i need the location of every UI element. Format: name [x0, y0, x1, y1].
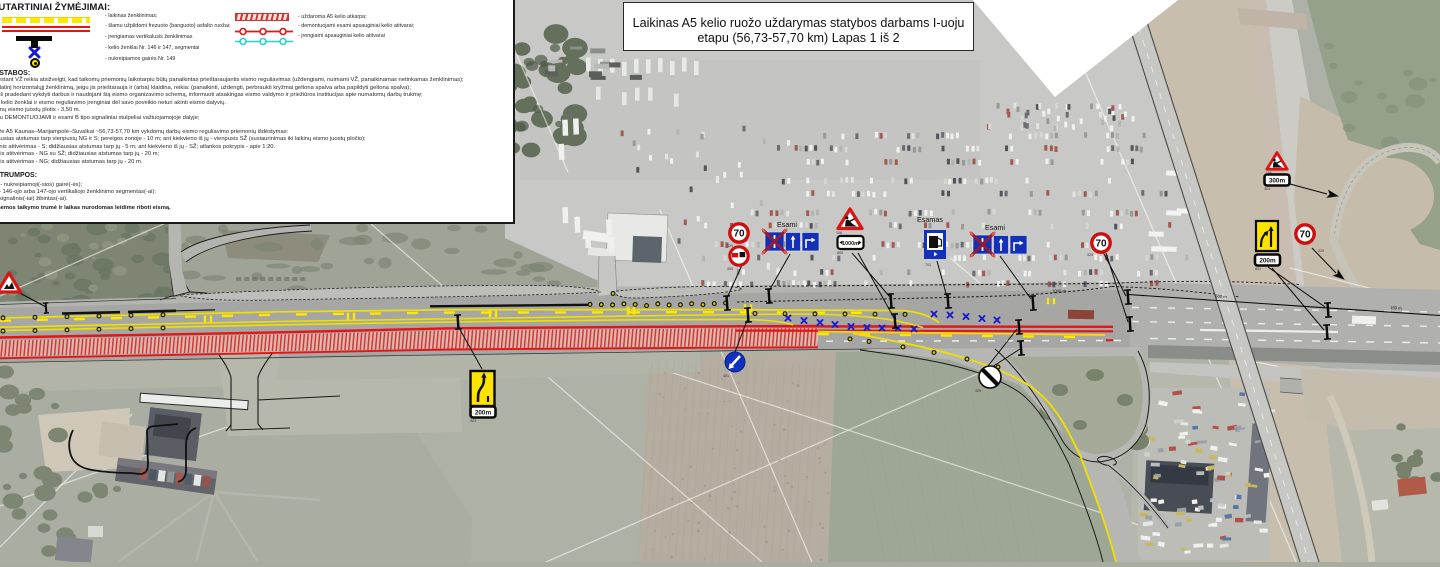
svg-text:1000 m: 1000 m	[1052, 289, 1066, 294]
svg-text:70: 70	[733, 229, 745, 240]
svg-text:150 m: 150 m	[1390, 305, 1402, 311]
svg-text:106: 106	[836, 231, 842, 235]
svg-text:305: 305	[727, 267, 733, 271]
svg-text:500 m: 500 m	[1215, 294, 1227, 300]
svg-text:1000m: 1000m	[842, 241, 859, 247]
svg-text:Esamas: Esamas	[917, 215, 943, 224]
svg-text:Esami: Esami	[777, 220, 797, 229]
svg-text:70: 70	[1095, 239, 1107, 250]
svg-text:70: 70	[1299, 230, 1311, 241]
svg-text:200m: 200m	[475, 409, 492, 416]
svg-text:801: 801	[1265, 187, 1271, 191]
svg-text:Esami: Esami	[985, 223, 1005, 232]
svg-text:401: 401	[723, 374, 729, 378]
svg-text:329: 329	[975, 389, 981, 393]
svg-text:801: 801	[1255, 267, 1261, 271]
svg-text:805: 805	[837, 251, 843, 255]
svg-text:300m: 300m	[1269, 177, 1286, 184]
svg-text:200m: 200m	[1259, 257, 1276, 264]
svg-text:329: 329	[727, 244, 733, 248]
svg-text:329: 329	[1318, 249, 1324, 253]
svg-text:821: 821	[471, 419, 477, 423]
svg-text:329: 329	[1087, 253, 1093, 257]
svg-text:701: 701	[925, 263, 931, 267]
